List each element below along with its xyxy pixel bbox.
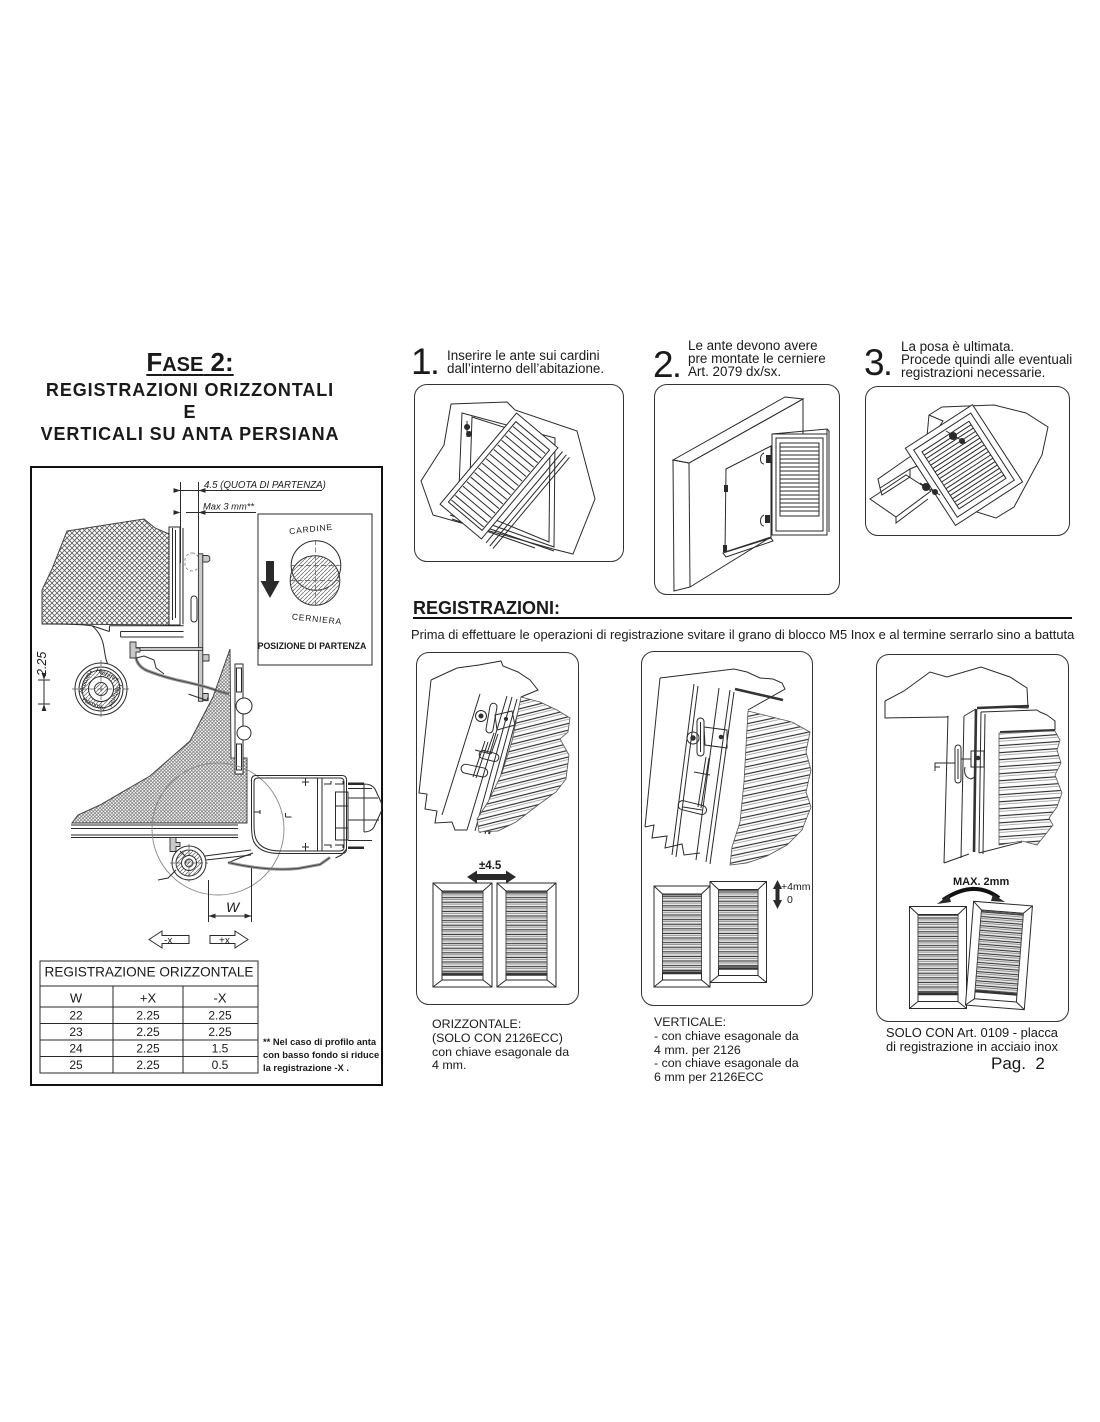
svg-text:+X: +X xyxy=(140,991,157,1006)
svg-text:0: 0 xyxy=(787,894,793,906)
svg-text:±4.5: ±4.5 xyxy=(479,860,502,872)
svg-text:Max 3 mm**: Max 3 mm** xyxy=(203,501,254,512)
svg-text:-X: -X xyxy=(214,991,227,1006)
svg-text:22: 22 xyxy=(69,1009,83,1023)
svg-text:0.5: 0.5 xyxy=(212,1058,229,1072)
svg-text:W: W xyxy=(226,899,241,915)
svg-text:con basso fondo si riduce: con basso fondo si riduce xyxy=(263,1049,379,1060)
svg-text:+4mm: +4mm xyxy=(781,881,811,893)
svg-text:1.5: 1.5 xyxy=(212,1042,229,1056)
svg-text:2.25: 2.25 xyxy=(208,1025,232,1039)
svg-text:24: 24 xyxy=(69,1042,83,1056)
svg-text:+x: +x xyxy=(219,936,230,947)
svg-text:2.25: 2.25 xyxy=(136,1009,160,1023)
svg-text:2.25: 2.25 xyxy=(136,1042,160,1056)
svg-text:W: W xyxy=(70,991,83,1006)
svg-text:23: 23 xyxy=(69,1025,83,1039)
svg-text:25: 25 xyxy=(69,1058,83,1072)
svg-text:REGISTRAZIONE ORIZZONTALE: REGISTRAZIONE ORIZZONTALE xyxy=(45,965,254,980)
svg-text:** Nel caso di profilo anta: ** Nel caso di profilo anta xyxy=(263,1036,377,1047)
svg-text:4.5 (QUOTA DI PARTENZA): 4.5 (QUOTA DI PARTENZA) xyxy=(204,480,326,491)
svg-text:2.25: 2.25 xyxy=(136,1025,160,1039)
svg-text:2.25: 2.25 xyxy=(208,1009,232,1023)
svg-text:POSIZIONE DI PARTENZA: POSIZIONE DI PARTENZA xyxy=(258,641,367,651)
svg-text:-x: -x xyxy=(164,936,172,947)
svg-text:2.25: 2.25 xyxy=(136,1058,160,1072)
svg-text:MAX. 2mm: MAX. 2mm xyxy=(953,876,1009,888)
svg-text:la registrazione -X .: la registrazione -X . xyxy=(263,1062,349,1073)
